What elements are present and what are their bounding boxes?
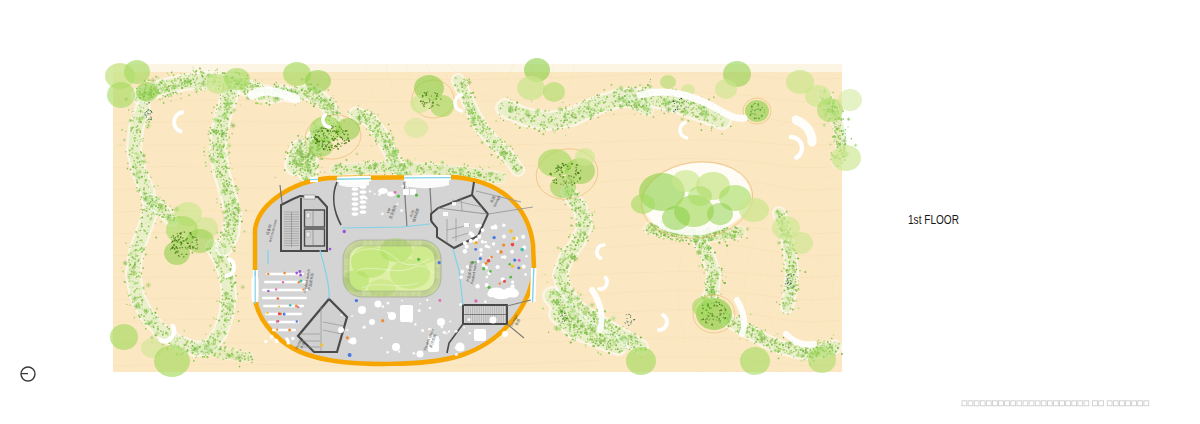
svg-text:1st FLOOR: 1st FLOOR bbox=[908, 213, 959, 227]
